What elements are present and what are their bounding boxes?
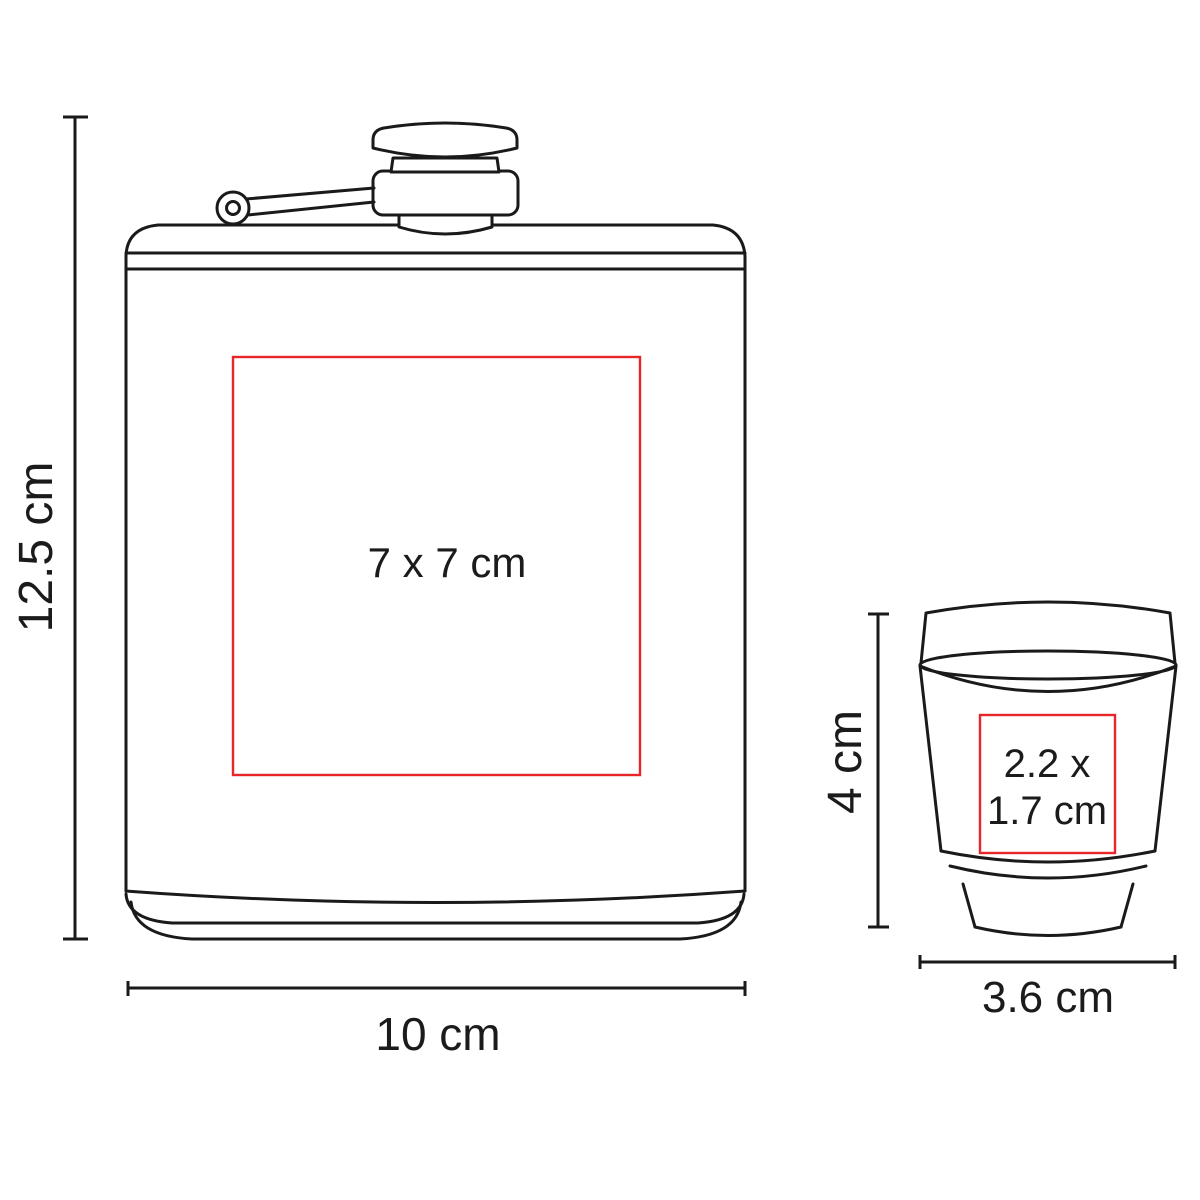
- flask-height-dimension: 12.5 cm: [10, 117, 88, 939]
- flask-print-area-label: 7 x 7 cm: [368, 539, 527, 586]
- flask-width-dimension: 10 cm: [128, 981, 745, 1060]
- diagram-canvas: 7 x 7 cm 12.5 cm 10 cm: [0, 0, 1200, 1200]
- flask-cap-top: [373, 123, 517, 157]
- dimension-diagram: 7 x 7 cm 12.5 cm 10 cm: [0, 0, 1200, 1200]
- cup-height-label: 4 cm: [819, 710, 872, 814]
- cup-base-right: [1121, 884, 1133, 927]
- flask-bottom-curve: [126, 891, 745, 903]
- flask-hinge-arm-bottom: [248, 202, 374, 215]
- cup-base-left: [963, 884, 975, 927]
- flask-illustration: 7 x 7 cm: [126, 123, 745, 939]
- cup-width-label: 3.6 cm: [982, 973, 1114, 1022]
- flask-base-bottom: [131, 902, 741, 939]
- cup-rim: [920, 651, 1176, 679]
- flask-cap-connector: [391, 158, 499, 172]
- flask-cap-collar: [373, 171, 518, 215]
- flask-width-label: 10 cm: [375, 1008, 500, 1060]
- flask-height-label: 12.5 cm: [10, 462, 63, 633]
- cup-side-left: [920, 666, 941, 851]
- cup-print-area-label-line1: 2.2 x: [1004, 742, 1091, 786]
- cup-height-dimension: 4 cm: [819, 614, 889, 927]
- cup-band-bottom: [950, 866, 1146, 878]
- cup-width-dimension: 3.6 cm: [920, 955, 1175, 1022]
- flask-hinge-pivot-inner: [227, 202, 240, 215]
- cup-side-right: [1155, 666, 1176, 851]
- cup-print-area-label-line2: 1.7 cm: [987, 789, 1107, 833]
- flask-hinge-arm-top: [246, 188, 374, 199]
- cup-illustration: 2.2 x 1.7 cm: [920, 602, 1176, 936]
- cup-base-bottom: [975, 927, 1121, 936]
